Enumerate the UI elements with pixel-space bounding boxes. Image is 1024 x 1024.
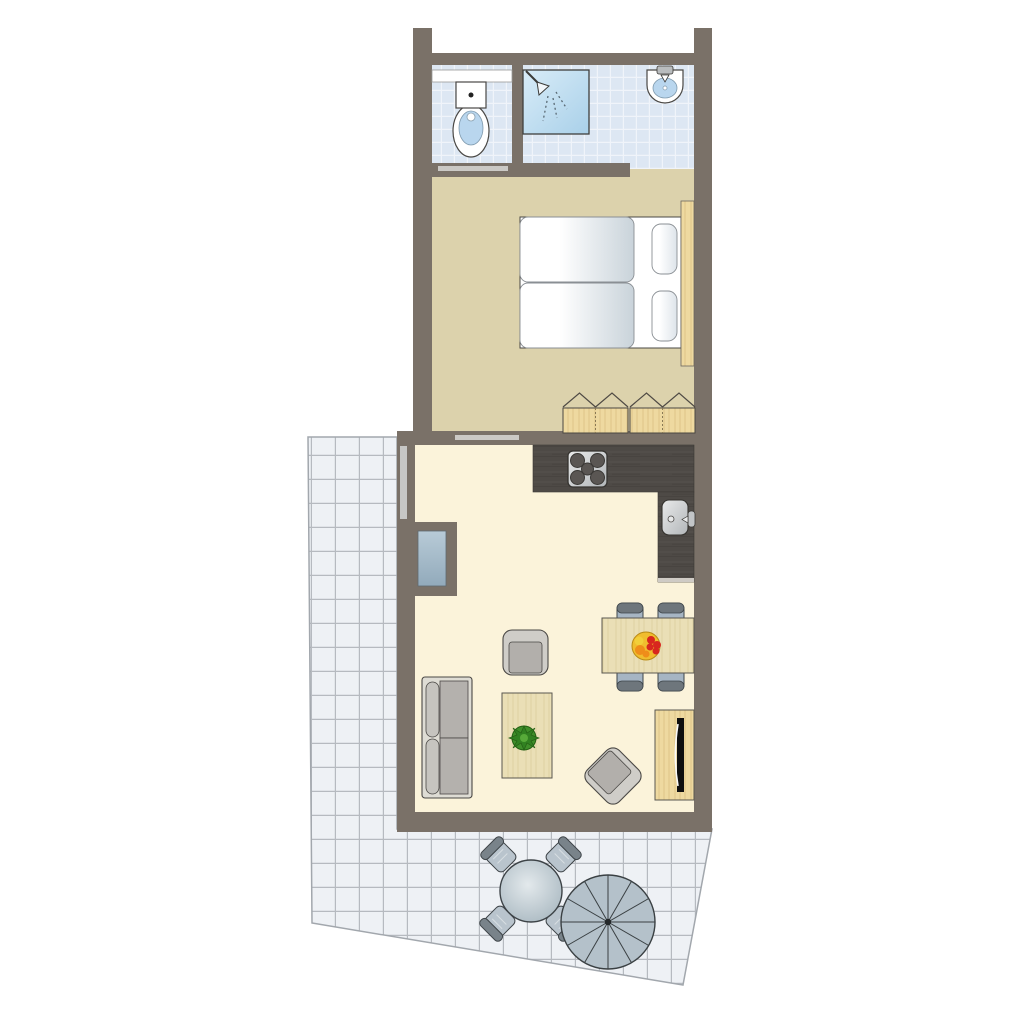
niche-glass-door [418, 531, 446, 586]
headboard [681, 201, 694, 366]
kitchen-faucet [688, 511, 695, 527]
plant-center [520, 734, 528, 742]
sofa-back-cushion-top [426, 682, 439, 737]
toilet [453, 82, 489, 157]
toilet-shower-divider-wall [512, 65, 523, 172]
washbasin [647, 66, 683, 103]
top-wall [413, 53, 712, 65]
floor-plan [0, 0, 1024, 1024]
kitchen-counter-top [533, 445, 694, 492]
right-wall [694, 28, 712, 832]
washbasin-faucet [657, 66, 673, 74]
sofa-seat-top [440, 681, 468, 738]
armchair [503, 630, 548, 675]
stove [568, 451, 607, 487]
kitchen-counter-end-strip [658, 578, 694, 582]
toilet-flush-button [469, 93, 474, 98]
sofa-back-cushion-bottom [426, 739, 439, 794]
left-wall [413, 28, 432, 445]
bathroom-shelf [432, 70, 512, 82]
pillow-bottom [652, 291, 677, 341]
sofa-seat-bottom [440, 738, 468, 794]
kitchen-sink-basin [662, 500, 688, 535]
pillow-top [652, 224, 677, 274]
tv-cabinet-top [655, 710, 694, 800]
sofa [422, 677, 472, 798]
parasol [561, 875, 655, 969]
tv-screen [677, 718, 684, 792]
fruit-bowl [632, 632, 661, 660]
shower [523, 70, 589, 134]
armchair-seat [509, 642, 542, 673]
shower-tray [523, 70, 589, 134]
kitchen-sink-drain [668, 516, 674, 522]
mattress-left [520, 217, 634, 282]
bedroom-sliding-door [455, 435, 519, 440]
mattress-right [520, 283, 634, 348]
living-bottom-wall [397, 812, 712, 832]
washbasin-drain [663, 86, 667, 90]
toilet-bowl-highlight [467, 113, 475, 121]
outdoor-table [500, 860, 562, 922]
coffee-table [502, 693, 552, 778]
living-room-window [400, 446, 407, 519]
toilet-sliding-door [438, 166, 508, 171]
floor-plan-canvas [0, 0, 1024, 1024]
tv-cabinet [655, 710, 694, 800]
double-bed [520, 201, 694, 366]
parasol-pole [605, 919, 611, 925]
